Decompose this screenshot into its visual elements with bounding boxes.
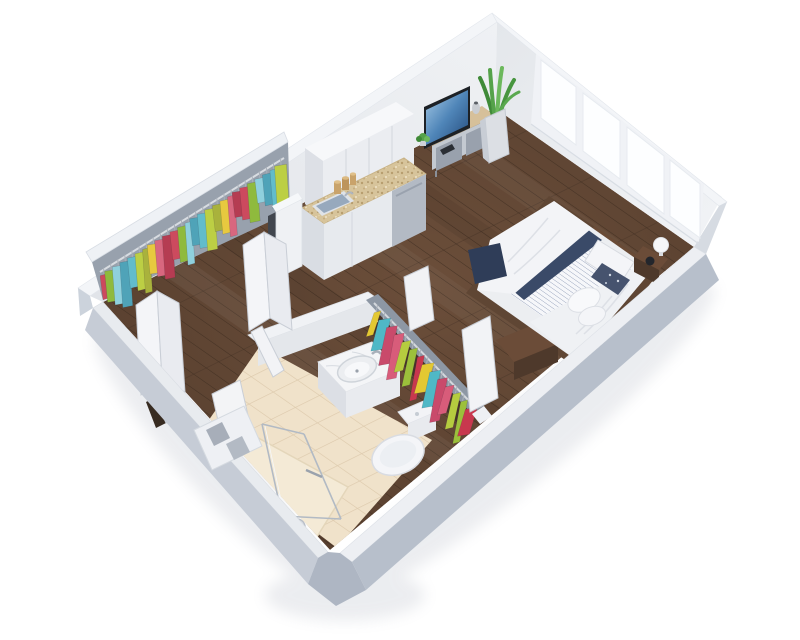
door-panel — [404, 266, 434, 331]
apartment-3d-scene — [0, 0, 800, 640]
planter — [485, 109, 509, 163]
floor-plan-render — [0, 0, 800, 640]
table-lamp — [654, 238, 669, 253]
alarm-clock — [646, 257, 655, 266]
